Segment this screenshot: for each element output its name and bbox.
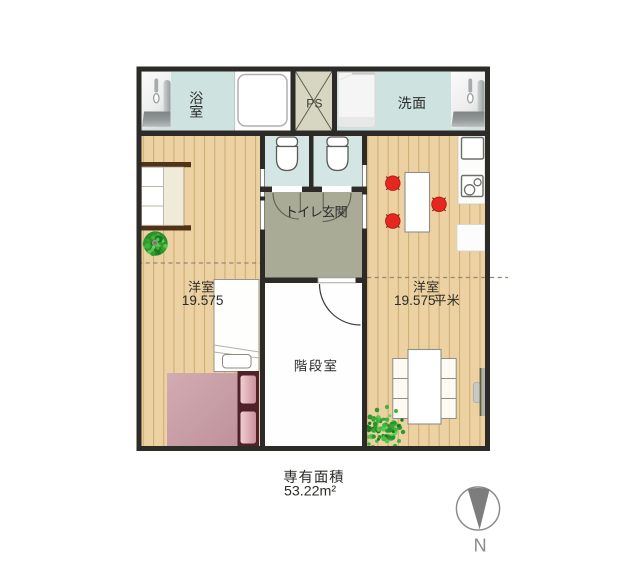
svg-text:19.575: 19.575	[394, 293, 436, 308]
svg-text:53.22m²: 53.22m²	[284, 483, 336, 499]
svg-text:N: N	[474, 535, 487, 555]
svg-text:19.575: 19.575	[182, 293, 224, 308]
svg-text:PS: PS	[306, 96, 322, 110]
